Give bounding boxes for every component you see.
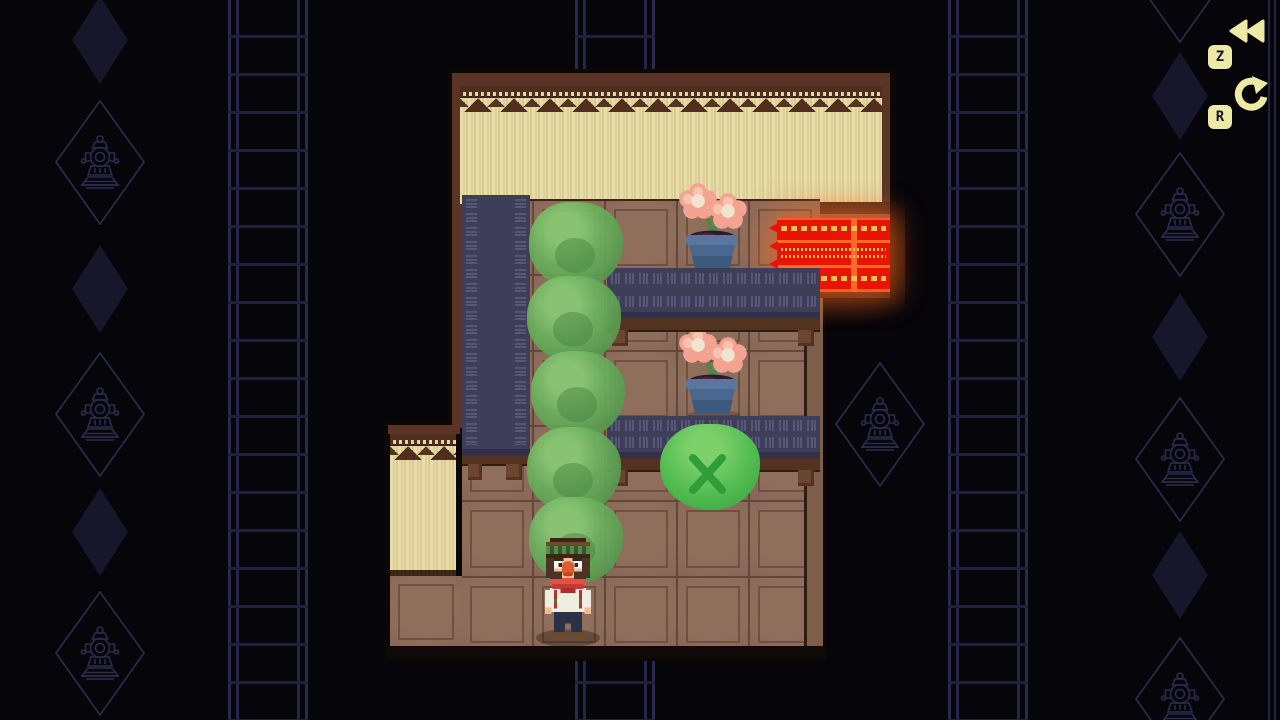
floor-tile bbox=[390, 576, 462, 648]
leaf-bush bbox=[660, 424, 760, 510]
restart-icon bbox=[1231, 76, 1268, 114]
train-diamond bbox=[55, 591, 145, 716]
filled-diamond bbox=[1152, 531, 1208, 619]
filled-diamond bbox=[72, 245, 128, 333]
game-viewport: Z R bbox=[0, 0, 1280, 720]
filled-diamond bbox=[72, 0, 128, 84]
floor-tile bbox=[462, 502, 532, 575]
extension-wallpaper bbox=[390, 434, 456, 572]
restart-key-badge: R bbox=[1208, 105, 1232, 129]
train-diamond bbox=[835, 362, 925, 487]
wallpaper bbox=[460, 86, 882, 204]
track-ladder-edge bbox=[1268, 0, 1278, 720]
floor-tile bbox=[678, 502, 748, 575]
train-diamond bbox=[1135, 397, 1225, 522]
undo-key-badge: Z bbox=[1208, 45, 1232, 69]
floor-tile bbox=[462, 578, 532, 651]
wall-trim bbox=[460, 86, 882, 112]
track-ladder bbox=[228, 0, 308, 720]
filled-diamond bbox=[1152, 293, 1208, 381]
floor-tile bbox=[606, 578, 676, 651]
vine-bush bbox=[527, 276, 621, 362]
player-character bbox=[534, 538, 602, 646]
filled-diamond bbox=[72, 488, 128, 576]
train-diamond bbox=[55, 352, 145, 477]
filled-diamond bbox=[1152, 52, 1208, 140]
train-diamond bbox=[1135, 152, 1225, 277]
extension-top-bar bbox=[388, 425, 460, 434]
rewind-icon bbox=[1226, 18, 1266, 44]
train-diamond bbox=[1135, 637, 1225, 720]
undo-button[interactable]: Z bbox=[1206, 18, 1266, 70]
flower-pot bbox=[672, 178, 752, 278]
track-ladder bbox=[948, 0, 1028, 720]
wall-trim bbox=[390, 434, 456, 460]
vine-bush bbox=[531, 351, 625, 437]
flower-pot bbox=[672, 322, 752, 422]
restart-button[interactable]: R bbox=[1206, 76, 1268, 130]
extension-floor bbox=[390, 576, 462, 648]
floor-tile bbox=[678, 578, 748, 651]
room-bottom-edge bbox=[388, 646, 826, 658]
train-diamond bbox=[55, 100, 145, 225]
